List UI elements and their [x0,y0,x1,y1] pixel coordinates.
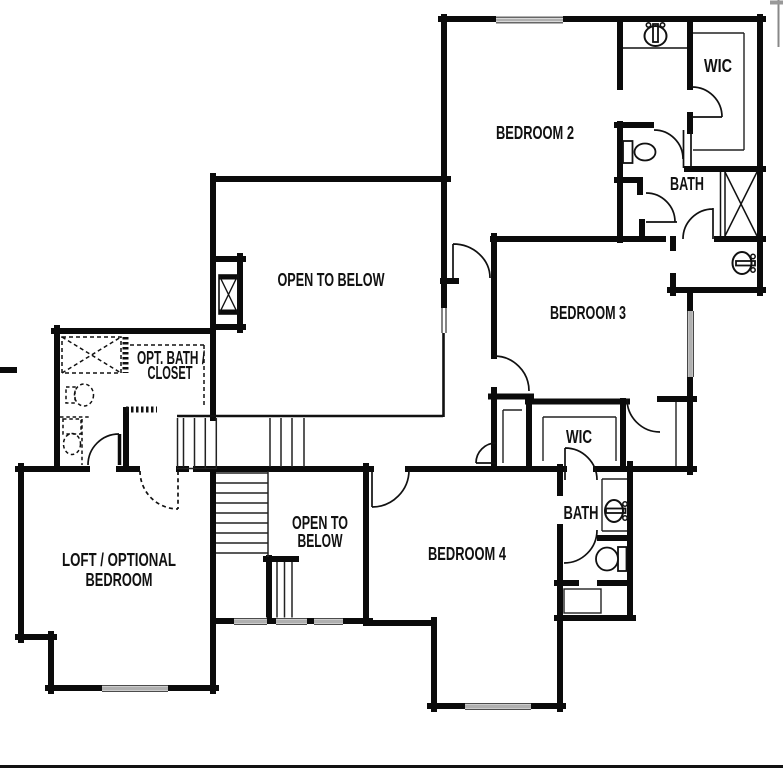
svg-text:BATH: BATH [564,502,599,523]
svg-text:WIC: WIC [704,55,732,76]
svg-text:WIC: WIC [566,426,592,447]
svg-text:BEDROOM 2: BEDROOM 2 [496,122,574,143]
svg-text:BELOW: BELOW [298,530,343,551]
svg-text:OPEN TO BELOW: OPEN TO BELOW [278,269,385,290]
svg-text:BEDROOM 3: BEDROOM 3 [550,302,626,323]
svg-text:BEDROOM: BEDROOM [86,569,153,590]
svg-text:BATH: BATH [670,173,704,194]
svg-text:BEDROOM 4: BEDROOM 4 [428,543,506,564]
svg-text:CLOSET: CLOSET [148,362,193,383]
svg-text:LOFT / OPTIONAL: LOFT / OPTIONAL [62,549,176,570]
